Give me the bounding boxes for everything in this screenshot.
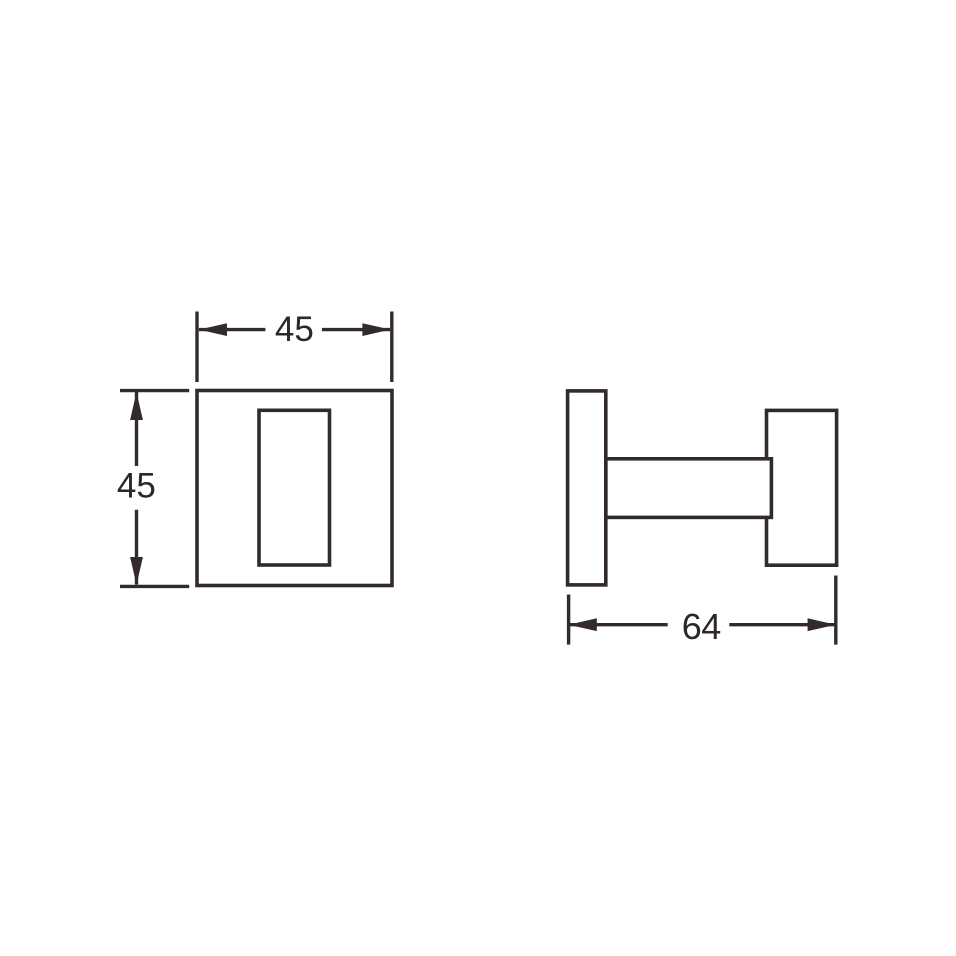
svg-text:45: 45 xyxy=(117,467,156,506)
svg-text:64: 64 xyxy=(682,606,721,647)
svg-text:45: 45 xyxy=(275,310,314,349)
